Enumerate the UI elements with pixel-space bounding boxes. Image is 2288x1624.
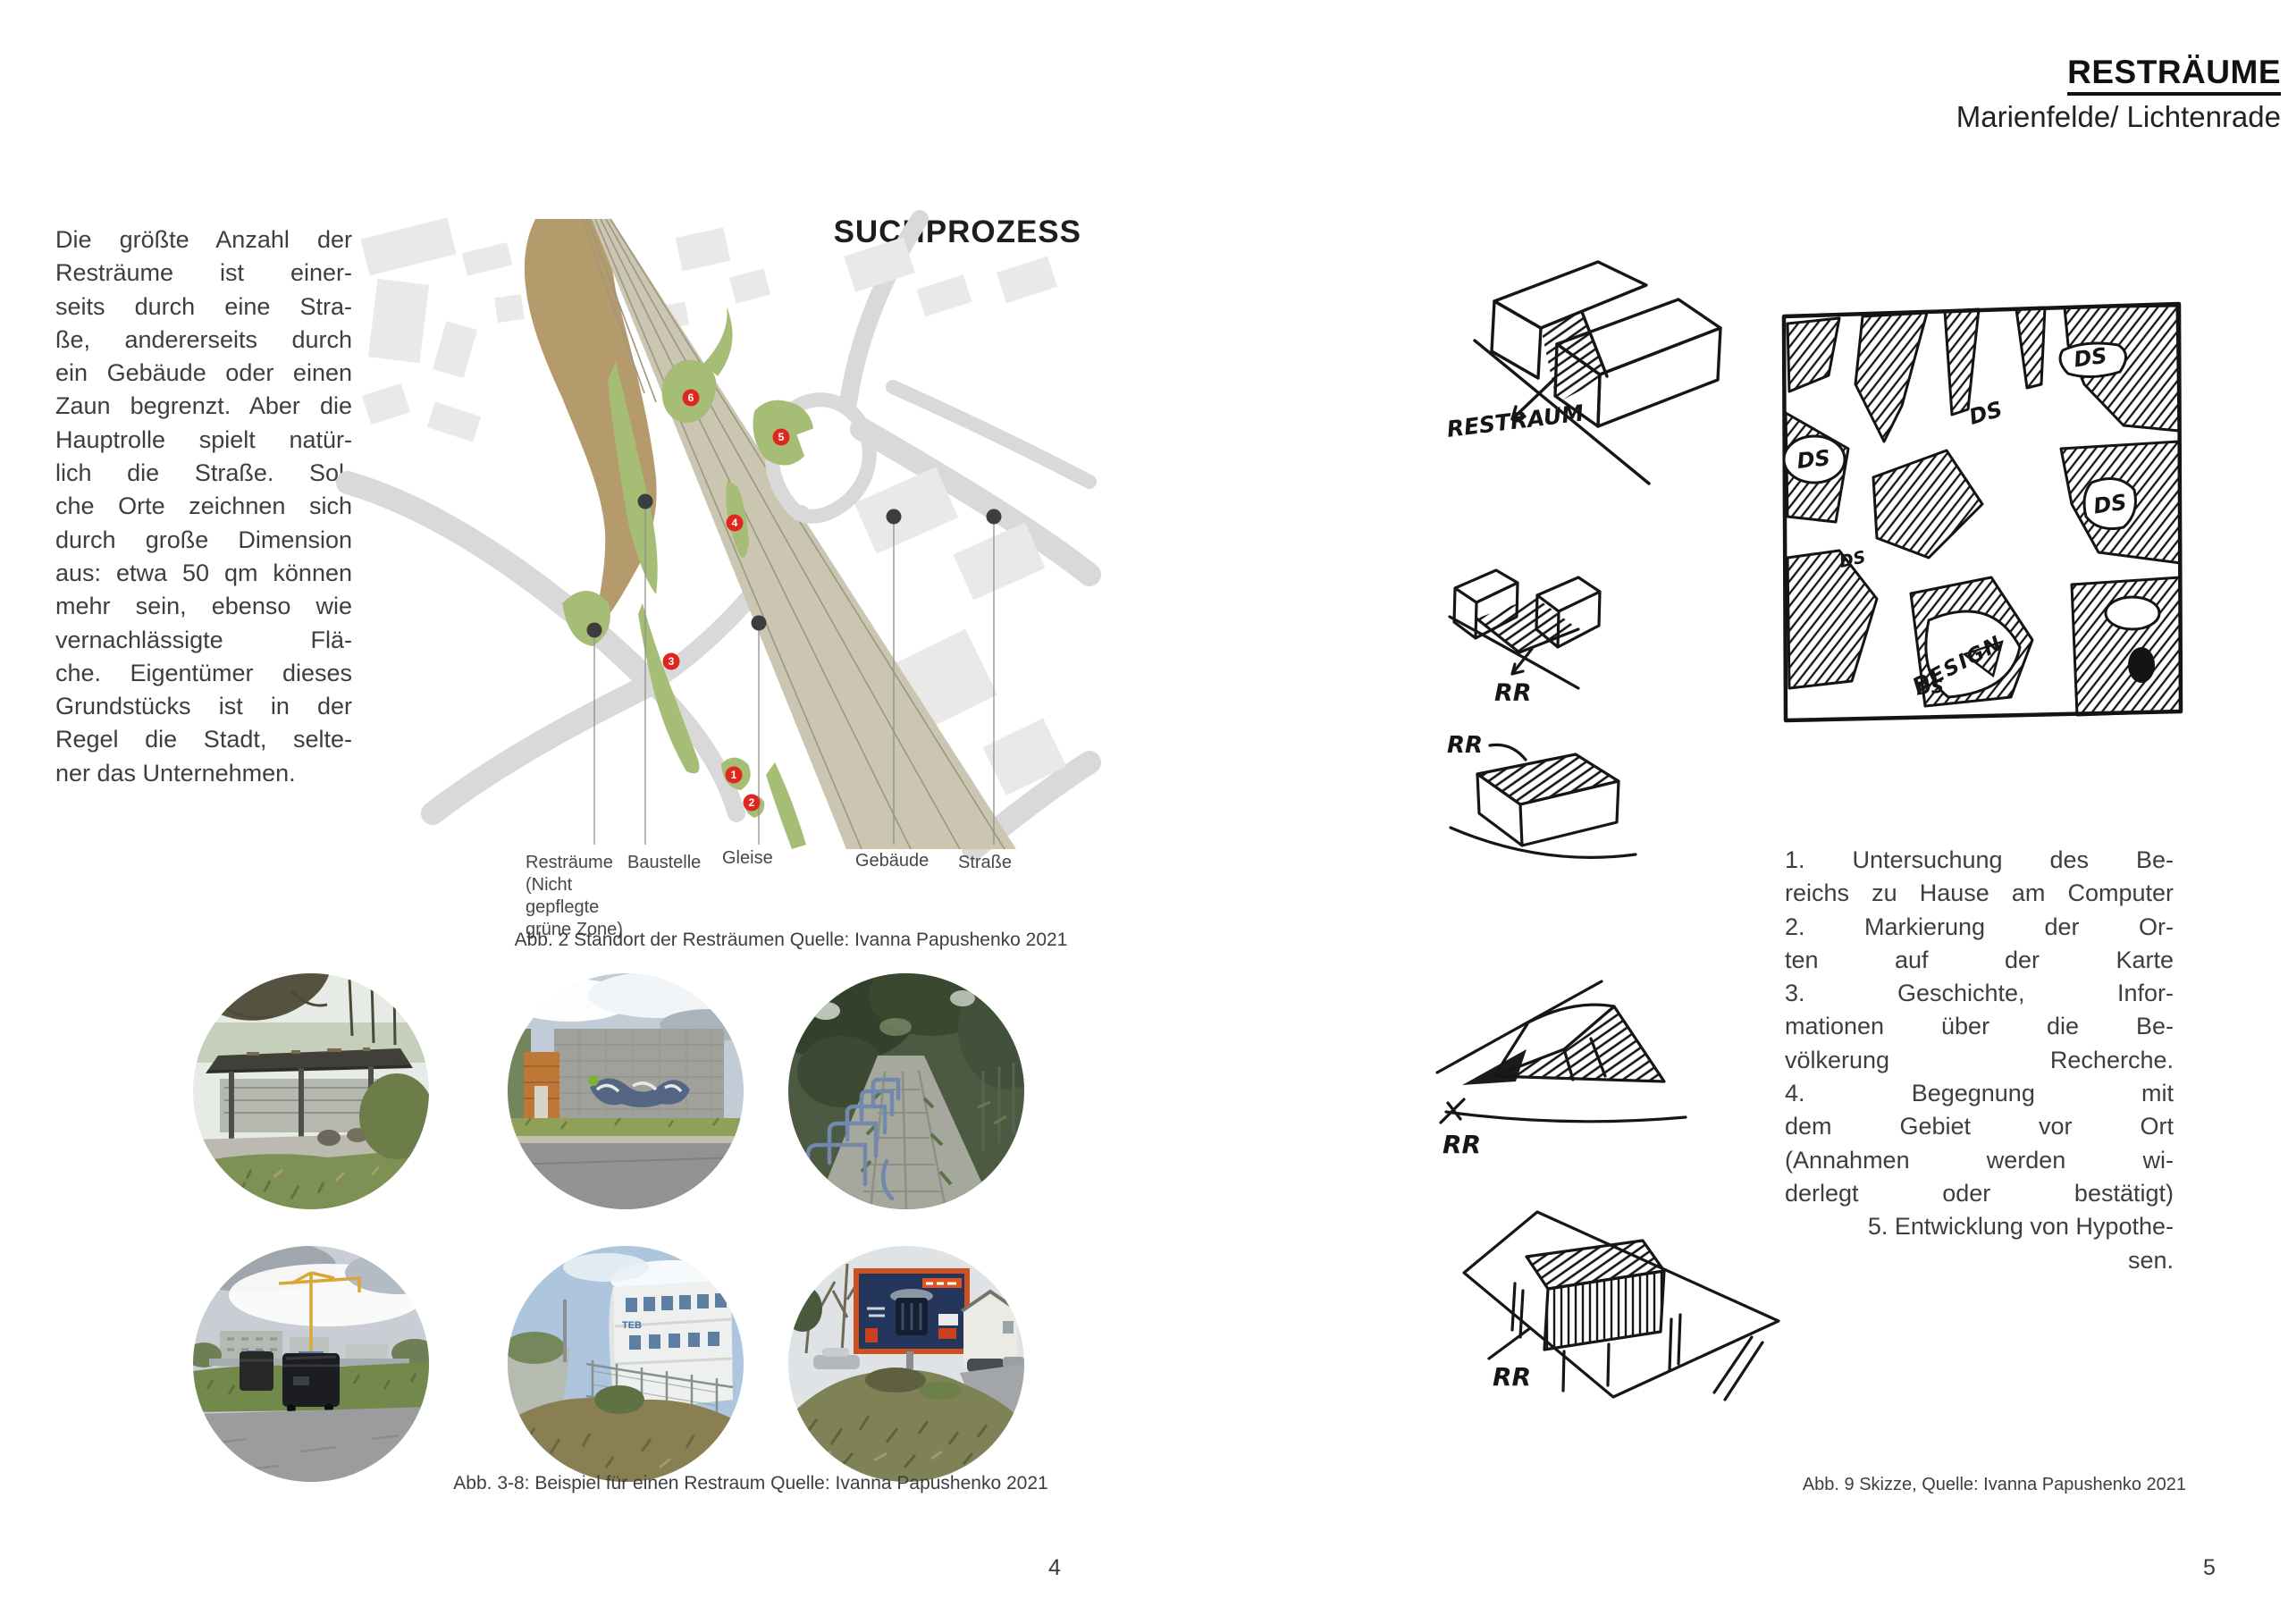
text-line: Grundstücks ist in der: [55, 690, 352, 723]
marker-3: 3: [669, 655, 675, 668]
sketch-caption: Abb. 9 Skizze, Quelle: Ivanna Papushenko…: [1787, 1475, 2186, 1495]
text-line: dem Gebiet vor Ort: [1785, 1110, 2174, 1143]
photo-dumpsters-construction-site: [193, 1246, 429, 1482]
legend-label-gebaeude: Gebäude: [855, 850, 954, 872]
text-line: 4. Begegnung mit: [1785, 1077, 2174, 1110]
marker-1: 1: [731, 769, 737, 781]
text-line: che. Eigentümer dieses: [55, 657, 352, 690]
sketch-blocks-gap: RESTRAUM: [1448, 244, 1756, 503]
legend-label-strasse: Straße: [958, 852, 1047, 874]
text-line: Die größte Anzahl der: [55, 223, 352, 257]
road-network: [348, 219, 1089, 849]
right-page-header: RESTRÄUME Marienfelde/ Lichtenrade: [1698, 54, 2281, 134]
text-line: völkerung Recherche.: [1785, 1044, 2174, 1077]
legend-label-baustelle: Baustelle: [627, 852, 726, 874]
photos-caption: Abb. 3-8: Beispiel für einen Restraum Qu…: [447, 1473, 1055, 1494]
photo-graffiti-wall: [508, 973, 744, 1209]
text-line: durch große Dimension: [55, 524, 352, 557]
marker-6: 6: [688, 391, 694, 404]
page-subtitle: Marienfelde/ Lichtenrade: [1698, 100, 2281, 134]
sketch-label-rr: RR: [1447, 732, 1483, 759]
map-caption: Abb. 2 Standort der Resträumen Quelle: I…: [496, 930, 1086, 951]
sketch-label-rr: RR: [1443, 1130, 1481, 1159]
text-line: 1. Untersuchung des Be-: [1785, 844, 2174, 877]
text-line: lich die Straße. Sol-: [55, 457, 352, 490]
sketch-tent: RR: [1430, 967, 1698, 1191]
text-line: 5. Entwicklung von Hypothe-: [1785, 1210, 2174, 1243]
sketch-map-label-ds: DS: [1966, 397, 2005, 430]
text-line: sen.: [1785, 1244, 2174, 1277]
photo-fenced-office-building: TEB: [508, 1246, 744, 1482]
document-spread: Die größte Anzahl derResträume ist einer…: [0, 0, 2288, 1624]
intro-paragraph: Die größte Anzahl derResträume ist einer…: [55, 223, 352, 790]
legend-label-gleise: Gleise: [722, 847, 812, 870]
building-sign-text: TEB: [622, 1320, 642, 1331]
billboard: [856, 1271, 967, 1351]
text-line: 3. Geschichte, Infor-: [1785, 977, 2174, 1010]
marker-4: 4: [732, 517, 738, 529]
text-line: Resträume ist einer-: [55, 257, 352, 290]
text-line: (Annahmen werden wi-: [1785, 1144, 2174, 1177]
text-line: 2. Markierung der Or-: [1785, 911, 2174, 944]
text-line: Hauptrolle spielt natür-: [55, 424, 352, 457]
text-line: ein Gebäude oder einen: [55, 357, 352, 390]
text-line: seits durch eine Stra-: [55, 290, 352, 324]
text-line: ße, andererseits durch: [55, 324, 352, 357]
text-line: ten auf der Karte: [1785, 944, 2174, 977]
page-title: RESTRÄUME: [1698, 54, 2281, 91]
legend-label-restraeume: Resträume (Nicht gepflegte grüne Zone): [526, 852, 633, 941]
text-line: ner das Unternehmen.: [55, 757, 352, 790]
sketch-map-label-ds: DS: [1796, 445, 1831, 474]
text-line: reichs zu Hause am Computer: [1785, 877, 2174, 910]
photo-overgrown-bike-racks: [788, 973, 1024, 1209]
text-line: Regel die Stadt, selte-: [55, 723, 352, 756]
text-line: aus: etwa 50 qm können: [55, 557, 352, 590]
marker-2: 2: [749, 796, 755, 809]
sketch-map: DS DS DS DS DS DS DESIGN: [1777, 299, 2186, 729]
text-line: derlegt oder bestätigt): [1785, 1177, 2174, 1210]
text-line: vernachlässigte Flä-: [55, 624, 352, 657]
marker-5: 5: [778, 431, 785, 443]
sketch-label-rr: RR: [1493, 1362, 1531, 1392]
process-list: 1. Untersuchung des Be-reichs zu Hause a…: [1785, 844, 2174, 1277]
sketch-map-label-ds: DS: [2073, 343, 2109, 373]
page-number-left: 4: [1037, 1555, 1072, 1581]
site-map-graphic: 1 2 3 4 5 6: [348, 219, 1089, 854]
text-line: mehr sein, ebenso wie: [55, 590, 352, 623]
text-line: Zaun begrenzt. Aber die: [55, 390, 352, 423]
sketch-slab-container: RR: [1430, 1187, 1787, 1428]
photo-carport-shelter: [193, 973, 429, 1209]
sketch-two-boxes: RR: [1446, 552, 1625, 722]
site-map: 1 2 3 4 5 6: [348, 219, 1089, 854]
photo-billboard-on-hill: [788, 1246, 1024, 1482]
text-line: che Orte zeichnen sich: [55, 490, 352, 523]
sketch-map-label-ds: DS: [1838, 547, 1867, 572]
sketch-map-label-ds: DS: [2092, 490, 2129, 519]
sketch-label-rr: RR: [1494, 679, 1532, 707]
sketch-hatched-box: RR: [1443, 722, 1644, 883]
text-line: mationen über die Be-: [1785, 1010, 2174, 1043]
page-number-right: 5: [2191, 1555, 2227, 1581]
